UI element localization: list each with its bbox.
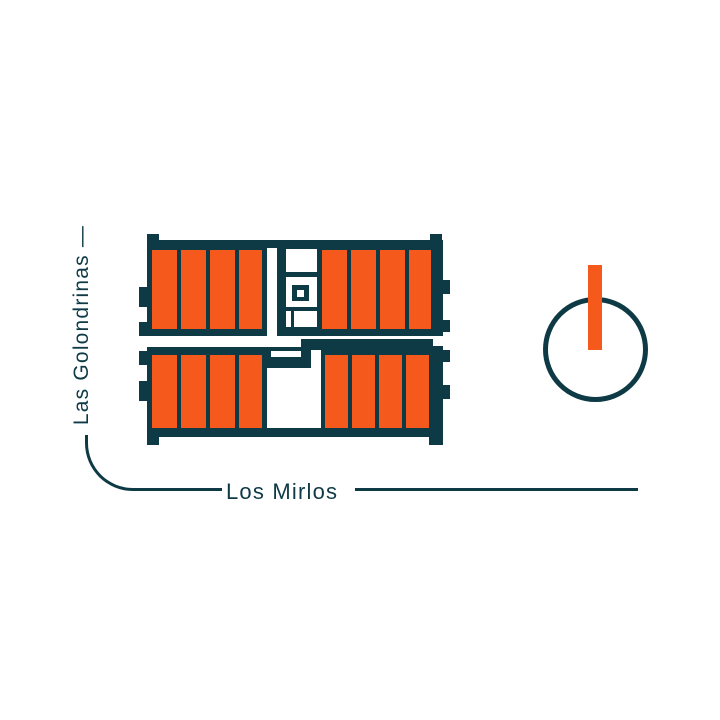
- facade-bump-left-2: [139, 322, 148, 336]
- street-line-right: [355, 488, 638, 491]
- corner-stub-bottom-right: [429, 437, 443, 445]
- apartment-unit: [210, 250, 235, 329]
- apartment-unit: [210, 355, 235, 428]
- apartment-unit: [181, 355, 206, 428]
- entry-hall-main: [267, 368, 321, 428]
- entry-hall-pocket: [311, 350, 321, 368]
- facade-bump-left-3: [139, 351, 148, 365]
- facade-bump-right-3: [443, 350, 450, 362]
- north-bar-icon: [588, 265, 602, 350]
- corner-stub-bottom-left: [147, 437, 159, 445]
- street-label-los-mirlos: Los Mirlos: [226, 479, 338, 505]
- apartment-unit: [322, 250, 347, 329]
- stair-landing-main: [294, 311, 317, 327]
- facade-bump-right-4: [442, 385, 450, 399]
- apartment-unit: [352, 355, 375, 428]
- bottom-right-wing-wall: [301, 339, 433, 350]
- apartment-unit: [239, 355, 262, 428]
- facade-bump-left-4: [139, 381, 148, 401]
- site-plan-canvas: Las Golondrinas — Los Mirlos: [0, 0, 720, 720]
- street-label-las-golondrinas: Las Golondrinas —: [69, 220, 95, 430]
- facade-bump-right-2: [443, 320, 450, 332]
- facade-bump-left-1: [139, 287, 148, 307]
- apartment-unit: [152, 250, 177, 329]
- corner-stub-top-left: [147, 234, 159, 242]
- apartment-unit: [152, 355, 177, 428]
- facade-bump-right-1: [442, 280, 450, 294]
- stair-landing-narrow: [286, 311, 291, 327]
- apartment-unit: [380, 250, 405, 329]
- entry-hall-slit: [271, 351, 301, 357]
- apartment-unit: [239, 250, 262, 329]
- corner-stub-top-right: [430, 234, 442, 242]
- apartment-unit: [406, 355, 429, 428]
- apartment-unit: [351, 250, 376, 329]
- apartment-unit: [409, 250, 431, 329]
- apartment-unit: [325, 355, 348, 428]
- core-corridor-strip: [267, 248, 277, 336]
- apartment-unit: [181, 250, 206, 329]
- elevator-cab: [297, 290, 304, 297]
- apartment-unit: [379, 355, 402, 428]
- core-room-top: [286, 249, 317, 272]
